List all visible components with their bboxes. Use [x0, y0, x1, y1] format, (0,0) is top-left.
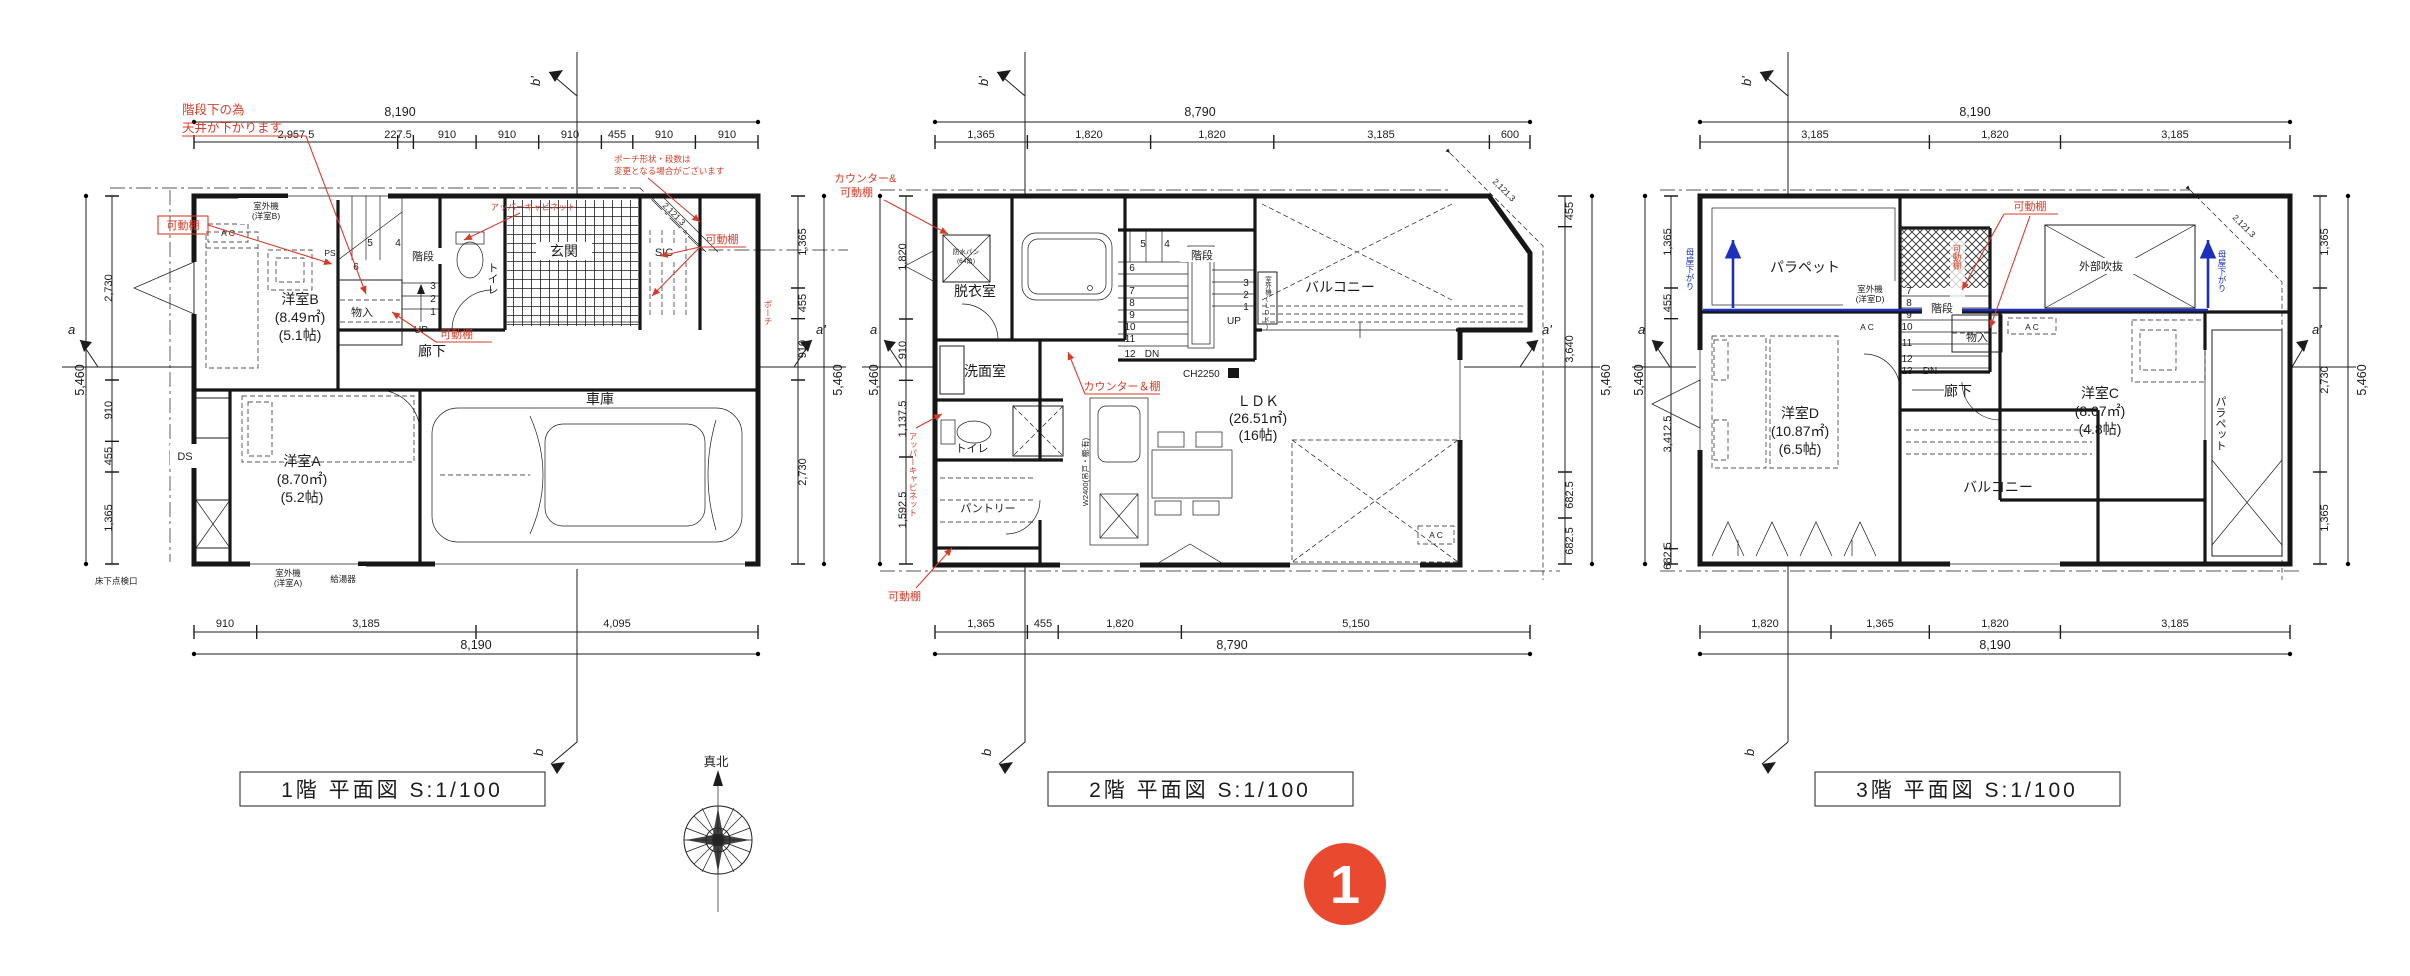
dim-label: 910 [216, 618, 234, 630]
dim-label: 1,365 [2319, 504, 2331, 532]
dim-total: 5,460 [1632, 364, 1646, 395]
room-area: (8.07㎡) [2075, 403, 2126, 419]
dim-total: 8,790 [1184, 105, 1215, 119]
ceiling-height: CH2250 [1183, 369, 1220, 380]
ldk-label: ＬＤＫ [1237, 393, 1279, 409]
true-north-label: 真北 [703, 755, 729, 769]
floor2-ldk: W2400(吊戸・棚:有) ＬＤＫ (26.51㎡) (16帖) CH2250 … [1080, 368, 1458, 562]
floor3-dims-top: 8,190 3,185 1,820 3,185 [1698, 105, 2292, 149]
svg-text:a: a [1638, 322, 1645, 337]
dim-label: 1,365 [967, 129, 995, 141]
floor1-dims-bottom: 910 3,185 4,095 8,190 [192, 618, 760, 656]
roof-lowered-note: 母屋下がり [2217, 250, 2227, 293]
room-tatami: (5.1帖) [279, 327, 322, 343]
dim-total: 8,190 [1979, 638, 2010, 652]
step-number: 1 [430, 307, 436, 318]
floor3-dims-right: 1,365 2,730 1,365 5,460 [2313, 194, 2369, 566]
dim-label: 1,365 [797, 228, 809, 256]
svg-text:10: 10 [1124, 322, 1136, 333]
movable-shelf-vertical: 可動棚 [1952, 244, 1962, 270]
svg-text:a': a' [816, 322, 826, 337]
dim-label: 1,820 [1981, 129, 2009, 141]
floor2-dims-top: 8,790 1,365 1,820 1,820 3,185 600 [933, 105, 1532, 149]
svg-text:13: 13 [1901, 366, 1913, 377]
svg-text:2: 2 [1243, 290, 1249, 301]
floor2-balcony: バルコニー 室外機(LDK) [1255, 204, 1524, 338]
step-number: 2 [430, 294, 436, 305]
floor3-plan: 2,121.3 b' b a a' 8,190 3,185 1,820 3,18… [1632, 52, 2369, 774]
hall-label: 廊下 [418, 343, 446, 359]
floor2-stairs: 階段 5 4 3 2 1 UP 6 7 8 9 10 11 12 DN [1118, 230, 1255, 360]
dim-label: 910 [103, 401, 115, 419]
dim-label: 455 [608, 129, 626, 141]
floor3-dims-bottom: 1,820 1,365 1,820 3,185 8,190 [1698, 618, 2292, 656]
dn-label: DN [1145, 349, 1159, 360]
svg-text:室外機: 室外機 [253, 201, 279, 211]
svg-text:a: a [68, 322, 75, 337]
ac-label: A C [1429, 530, 1443, 540]
dim-label: 5,150 [1342, 618, 1370, 630]
title-floor3: 3階 平面図 S:1/100 [1815, 772, 2120, 806]
dim-total: 5,460 [867, 364, 881, 395]
note-ceiling: 天井が下がります [182, 120, 282, 135]
svg-text:4: 4 [1164, 239, 1170, 250]
room-label: 洋室D [1781, 405, 1819, 421]
outdoor-unit-room-b: 室外機 (洋室B) [238, 198, 294, 224]
dim-label: 682.5 [1662, 542, 1674, 570]
floorplan-drawing: 2,121.3 b' b a a' 8,190 2,957.5 227.5 91… [0, 0, 2410, 976]
dim-total: 8,790 [1216, 638, 1247, 652]
room-area: (8.70㎡) [277, 471, 328, 487]
floor3-parapet: パラペット 室外機 (洋室D) A C [1712, 208, 1897, 335]
dim-label: 1,820 [1106, 618, 1134, 630]
section-line-a: a a' [1632, 322, 2356, 367]
dim-label: 3,412.5 [1662, 416, 1674, 453]
grid-marker-b-top: b' [528, 52, 577, 196]
room-tatami: (6.5帖) [1779, 441, 1822, 457]
title-floor1: 1階 平面図 S:1/100 [240, 772, 545, 806]
dim-label: 910 [718, 129, 736, 141]
ac-label: A C [1860, 322, 1874, 332]
outer-void-label: 外部吹抜 [2079, 259, 2123, 273]
room-label: 洋室C [2081, 385, 2119, 401]
svg-text:a: a [870, 322, 877, 337]
floor3-red-notes: 可動棚 [1962, 199, 2058, 328]
water-heater-label: 給湯器 [330, 574, 356, 584]
svg-text:a': a' [1542, 322, 1552, 337]
svg-text:9: 9 [1906, 310, 1912, 321]
up-label: UP [414, 325, 428, 336]
compass-north: 真北 [684, 755, 752, 912]
room-label: 洋室B [281, 291, 318, 307]
dim-label: 3,185 [1367, 129, 1395, 141]
floor1-title: 1階 平面図 S:1/100 [281, 779, 503, 802]
room-area: (10.87㎡) [1771, 423, 1829, 439]
dim-label: 682.5 [1564, 481, 1576, 509]
movable-shelf-note: 可動棚 [440, 327, 473, 341]
floor3-stairs: 階段 7 8 9 10 11 12 13 DN 可動棚 [1900, 228, 1990, 377]
grid-marker-b-top: b' [976, 52, 1025, 196]
svg-text:b': b' [976, 76, 991, 86]
movable-shelf-note: 可動棚 [706, 232, 739, 246]
grid-marker-b-bottom: b [1742, 565, 1788, 774]
dim-label: 1,365 [1662, 228, 1674, 256]
floor2-dressing-bath: 防水パン (64角) 脱衣室 洗面室 [940, 233, 1112, 394]
dim-total: 5,460 [1599, 364, 1613, 395]
dim-label: 1,365 [1866, 618, 1894, 630]
title-floor2: 2階 平面図 S:1/100 [1048, 772, 1353, 806]
movable-shelf-note: 可動棚 [2014, 199, 2047, 213]
upper-cabinet-note: アッパーキャビネット [490, 202, 575, 212]
svg-text:10: 10 [1901, 322, 1913, 333]
up-label: UP [1227, 316, 1241, 327]
diagonal-dim-label: 2,121.3 [2231, 212, 2258, 239]
dim-label: 455 [797, 294, 809, 312]
dim-label: 1,820 [897, 243, 909, 271]
step-number: 4 [395, 238, 401, 249]
svg-text:1: 1 [1243, 302, 1249, 313]
sic-label: SIC [655, 247, 673, 259]
room-tatami: (4.8帖) [2079, 421, 2122, 437]
stairs-label: 階段 [1931, 301, 1953, 315]
svg-text:7: 7 [1906, 286, 1912, 297]
dim-label: 3,185 [1801, 129, 1829, 141]
dim-total: 5,460 [831, 364, 845, 395]
floorplan-sheet: 2,121.3 b' b a a' 8,190 2,957.5 227.5 91… [0, 0, 2410, 976]
floor3-parapet-right: パラペット [2212, 330, 2282, 556]
svg-text:3: 3 [1243, 278, 1249, 289]
counter-shelf-note: カウンター& [834, 172, 897, 185]
storage-label: 物入 [351, 305, 373, 319]
stairs-label: 階段 [1191, 248, 1213, 262]
dim-label: 910 [561, 129, 579, 141]
svg-text:12: 12 [1124, 349, 1136, 360]
movable-shelf-note: 可動棚 [167, 218, 200, 232]
room-tatami: (5.2帖) [281, 489, 324, 505]
floor3-title: 3階 平面図 S:1/100 [1856, 779, 2078, 802]
balcony-label: バルコニー [1963, 479, 2033, 495]
diagonal-dim-label: 2,121.3 [661, 200, 688, 227]
dim-label: 227.5 [384, 129, 412, 141]
dressing-label: 脱衣室 [954, 283, 996, 299]
floor1-service-strip: DS [170, 398, 230, 548]
svg-text:b: b [979, 749, 994, 756]
dim-label: 910 [897, 341, 909, 359]
dim-total: 8,190 [384, 105, 415, 119]
balcony-label: バルコニー [1305, 279, 1375, 295]
dim-label: 2,730 [797, 458, 809, 486]
dim-label: 1,820 [1751, 618, 1779, 630]
counter-and-shelf-note: カウンター＆棚 [1084, 379, 1161, 393]
dim-label: 600 [1501, 129, 1519, 141]
storage-label: 物入 [1966, 330, 1988, 344]
dim-label: 1,365 [2319, 228, 2331, 256]
dim-label: 910 [797, 340, 809, 358]
ps-label: PS [324, 248, 336, 258]
dim-label: 3,185 [2161, 618, 2189, 630]
badge-number: 1 [1330, 855, 1360, 915]
floor1-stairs: 階段 5 4 6 3 2 1 UP PS [324, 196, 442, 336]
floor1-toilet: トイレ [452, 232, 498, 330]
dim-label: 910 [438, 129, 456, 141]
porch-note: 変更となる場合がございます [614, 166, 724, 176]
svg-text:b': b' [1739, 76, 1754, 86]
room-area: (8.49㎡) [275, 309, 326, 325]
washroom-label: 洗面室 [964, 363, 1006, 379]
underfloor-hatch-label: 床下点検口 [95, 576, 138, 586]
svg-text:室外機: 室外機 [275, 568, 301, 578]
dim-label: 455 [1564, 202, 1576, 220]
svg-text:11: 11 [1902, 338, 1913, 349]
dn-label: DN [1923, 366, 1937, 377]
diagonal-dim-label: 2,121.3 [1491, 176, 1518, 203]
floor1-room-b: A C 洋室B (8.49㎡) (5.1帖) [206, 224, 325, 368]
svg-text:b: b [531, 749, 546, 756]
parapet-label: パラペット [1770, 259, 1840, 275]
dim-label: 3,185 [352, 618, 380, 630]
ldk-area: (26.51㎡) [1229, 410, 1287, 426]
floor1-entrance: 玄関 SIC [505, 200, 686, 326]
roof-lowered-note: 母屋下がり [1685, 248, 1695, 291]
hall-label: 廊下 [1944, 383, 1972, 399]
dim-label: 455 [1662, 294, 1674, 312]
floor2-toilet-pantry: トイレ パントリー [940, 406, 1063, 534]
dim-label: 1,365 [967, 618, 995, 630]
floor2-title: 2階 平面図 S:1/100 [1089, 779, 1311, 802]
svg-text:b': b' [528, 76, 543, 86]
dim-label: 910 [498, 129, 516, 141]
porch-note: ポーチ形状・段数は [614, 154, 691, 164]
svg-text:9: 9 [1129, 310, 1135, 321]
svg-text:(洋室B): (洋室B) [252, 211, 281, 221]
room-label: 洋室A [283, 453, 321, 469]
svg-text:b: b [1742, 749, 1757, 756]
ds-label: DS [177, 451, 192, 463]
waterproof-pan: (64角) [957, 256, 975, 265]
floor2-dims-bottom: 1,365 455 1,820 5,150 8,790 [933, 618, 1532, 656]
garage-label: 車庫 [586, 391, 614, 407]
ac-label: A C [2025, 322, 2039, 332]
grid-marker-b-top: b' [1739, 52, 1788, 196]
svg-text:a': a' [2312, 322, 2322, 337]
parapet-label: パラペット [2214, 396, 2227, 451]
dim-label: 455 [1034, 618, 1052, 630]
svg-text:7: 7 [1129, 286, 1135, 297]
dim-total: 5,460 [2355, 364, 2369, 395]
dim-label: 1,820 [1981, 618, 2009, 630]
dim-label: 2,957.5 [278, 129, 315, 141]
dim-label: 3,185 [2161, 129, 2189, 141]
floor3-outer-void: 外部吹抜 [2045, 225, 2195, 308]
dim-label: 3,640 [1564, 335, 1576, 363]
svg-text:(洋室D): (洋室D) [1856, 294, 1885, 304]
floor3-room-c: A C 洋室C (8.07㎡) (4.8帖) [2008, 318, 2205, 437]
pantry-label: パントリー [960, 502, 1016, 515]
svg-text:5: 5 [1140, 239, 1146, 250]
dim-total: 5,460 [73, 364, 87, 395]
floor1-dims-left: 2,730 910 455 1,365 5,460 [73, 194, 119, 566]
kitchen-spec: W2400(吊戸・棚:有) [1080, 437, 1090, 506]
dim-label: 455 [103, 447, 115, 465]
grid-marker-b-bottom: b [531, 565, 577, 774]
floor1-plan: 2,121.3 b' b a a' 8,190 2,957.5 227.5 91… [62, 52, 848, 774]
toilet-label: トイレ [486, 262, 498, 295]
svg-text:12: 12 [1901, 354, 1913, 365]
dim-label: 1,820 [1075, 129, 1103, 141]
svg-text:6: 6 [1129, 263, 1135, 274]
step-number: 5 [367, 238, 373, 249]
floor2-dims-right: 455 3,640 682.5 682.5 5,460 [1558, 194, 1613, 566]
dim-label: 682.5 [1564, 527, 1576, 555]
upper-cabinet-note: アッパーキャビネット [908, 432, 918, 517]
waterproof-pan: 防水パン [953, 247, 979, 256]
dim-total: 8,190 [460, 638, 491, 652]
page-number-badge: 1 [1304, 843, 1386, 925]
grid-marker-b-bottom: b [979, 565, 1025, 774]
porch-label: ポーチ [763, 300, 773, 326]
svg-text:(洋室A): (洋室A) [274, 578, 303, 588]
floor3-dims-left: 1,365 455 3,412.5 682.5 5,460 [1632, 194, 1678, 570]
floor1-equipment: 室外機 (洋室A) 給湯器 床下点検口 [95, 566, 366, 590]
svg-text:8: 8 [1129, 298, 1135, 309]
svg-text:11: 11 [1125, 334, 1136, 345]
stairs-label: 階段 [412, 249, 434, 263]
movable-shelf-note: 可動棚 [888, 589, 921, 603]
dim-total: 8,190 [1959, 105, 1990, 119]
dim-label: 2,730 [2319, 366, 2331, 394]
dim-label: 910 [655, 129, 673, 141]
step-number: 3 [430, 281, 436, 292]
counter-shelf-note: 可動棚 [840, 185, 873, 199]
svg-text:室外機: 室外機 [1857, 284, 1883, 294]
floor3-room-d: 洋室D (10.87㎡) (6.5帖) [1712, 336, 1876, 556]
floor2-dims-left: 1,820 910 1,137.5 1,592.5 5,460 [867, 194, 913, 566]
dim-label: 1,820 [1198, 129, 1226, 141]
dim-label: 1,365 [103, 504, 115, 532]
dim-label: 4,095 [603, 618, 631, 630]
note-ceiling: 階段下の為 [182, 102, 245, 117]
entrance-label: 玄関 [550, 243, 578, 259]
floor1-room-a: 洋室A (8.70㎡) (5.2帖) [242, 390, 420, 505]
toilet-label: トイレ [956, 443, 989, 455]
floor2-plan: 2,121.3 b' b a a' 8,790 1,365 1,820 1,82… [834, 52, 1613, 774]
floor1-garage: 車庫 [432, 391, 742, 542]
ldk-tatami: (16帖) [1239, 427, 1278, 443]
dim-label: 2,730 [103, 274, 115, 302]
svg-text:8: 8 [1906, 298, 1912, 309]
